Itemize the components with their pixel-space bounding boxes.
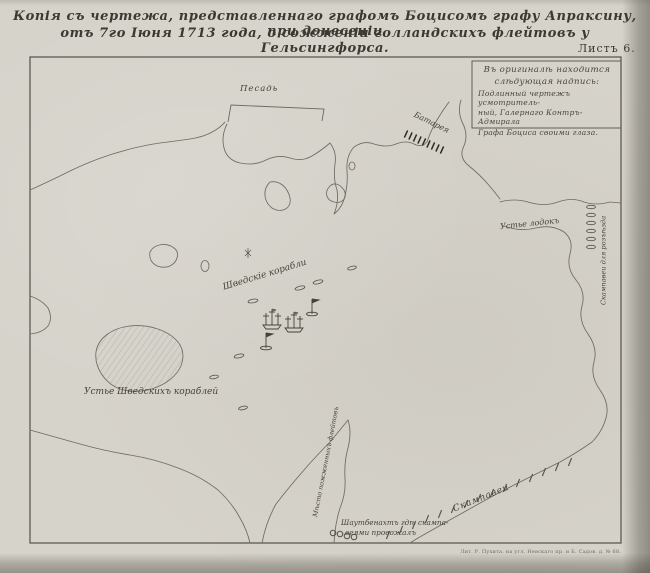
hatched-island xyxy=(96,326,183,392)
islands xyxy=(96,162,355,391)
ship-icon xyxy=(263,309,281,329)
legend-line: ный, Галернаго Контръ-Адмирала xyxy=(474,108,620,126)
legend-note: Въ оригиналѣ находится слѣдующая надпись… xyxy=(474,63,620,127)
label-posad: Песадь xyxy=(240,85,278,94)
label-shautbenaht-line2: веями провожалъ xyxy=(345,529,416,537)
star-mark-icon xyxy=(245,248,251,258)
label-ustye-shvedskih-korablej: Устье Шведскихъ кораблей xyxy=(84,388,218,397)
label-skampavei-razezd: Скампавеи для розъѣзда xyxy=(601,212,608,308)
flag-ship-icon xyxy=(307,299,320,316)
legend-line: слѣдующая надпись: xyxy=(474,77,620,87)
legend-line: Подлинный чертежъ усмотритель- xyxy=(474,89,620,107)
flag-ship-icon xyxy=(261,333,274,350)
legend-line: Графа Боциса своими глаза. xyxy=(474,128,620,137)
label-shautbenaht-line1: Шаутбенахтъ гдѣ скампа- xyxy=(341,519,448,527)
lithographer-imprint: Лит. Р. Пухита, на угл. Невскаго пр. и Б… xyxy=(455,549,621,555)
legend-line: Въ оригиналѣ находится xyxy=(474,65,620,75)
scanned-map-sheet: Копія съ чертежа, представленнаго графом… xyxy=(0,0,650,573)
galley-column-icons xyxy=(587,205,596,248)
swedish-ships xyxy=(261,299,320,350)
quay-outline xyxy=(228,105,324,122)
battery-hatch-icon xyxy=(404,130,443,153)
ship-icon xyxy=(285,312,303,332)
